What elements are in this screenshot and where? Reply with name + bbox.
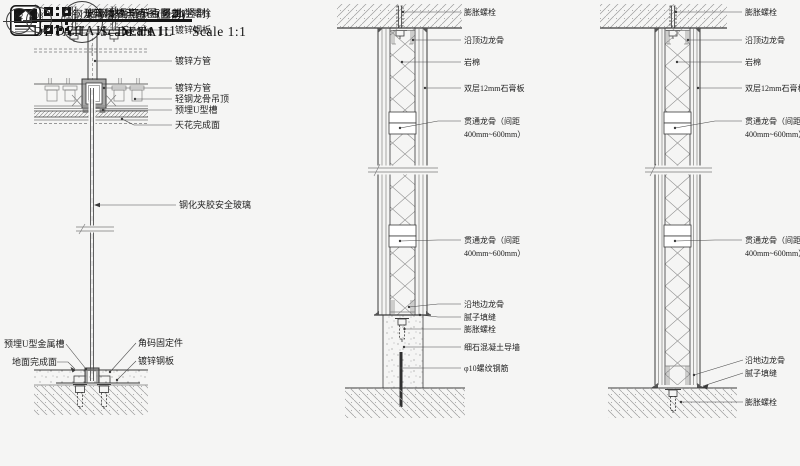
ground-slab <box>608 388 737 418</box>
scale-label: Scale 1:1 <box>122 23 176 39</box>
drawing-title: 轻钢龙骨墙节点图二(竖剖) <box>87 5 210 20</box>
laminated-glass-pane <box>89 88 96 381</box>
label-laminated-glass: 钢化夹胶安全玻璃 <box>179 199 251 210</box>
label-bottom-edge-keel: 沿地边龙骨 <box>464 299 504 309</box>
annotations: 化学螺栓 镀锌钢板 镀锌方管 镀锌方管 轻钢龙骨吊顶 预埋U型槽 天花完成面 钢… <box>4 7 251 381</box>
label-through-keel-2: 贯通龙骨（间距 <box>464 235 520 245</box>
label-galv-square-tube-1: 镀锌方管 <box>175 55 211 66</box>
break-line <box>645 164 713 176</box>
label-galv-square-tube-2: 镀锌方管 <box>175 82 211 93</box>
label-galv-steel-plate-2: 镀锌钢板 <box>138 355 174 366</box>
label-putty-caulking: 腻子填缝 <box>464 312 496 322</box>
scale-label: Scale 1:1 <box>192 24 246 40</box>
label-through-keel-2: 贯通龙骨（间距 <box>745 235 800 245</box>
label-gypsum-board: 双层12mm石膏板 <box>745 83 800 93</box>
label-concrete-curb: 细石混凝土导墙 <box>464 342 520 352</box>
label-rebar: φ10螺纹钢筋 <box>464 363 509 373</box>
through-keel-box-2 <box>389 225 416 247</box>
label-through-keel-1-spacing: 400mm~600mm） <box>745 130 800 139</box>
concrete-slab-top <box>600 4 727 28</box>
label-putty-caulking: 腻子填缝 <box>745 368 777 378</box>
bubble-divider <box>23 20 55 21</box>
label-through-keel-1: 贯通龙骨（间距 <box>464 116 520 126</box>
label-top-edge-keel: 沿顶边龙骨 <box>464 35 504 45</box>
detail-drawing-glass-partition: 化学螺栓 镀锌钢板 镀锌方管 镀锌方管 轻钢龙骨吊顶 预埋U型槽 天花完成面 钢… <box>0 0 330 425</box>
through-keel-box-1 <box>664 112 691 134</box>
label-bottom-edge-keel: 沿地边龙骨 <box>745 355 785 365</box>
through-keel-box-1 <box>389 112 416 134</box>
break-line <box>76 224 114 234</box>
label-expansion-bolt-bottom: 膨胀螺栓 <box>464 324 496 334</box>
label-expansion-bolt-bottom: 膨胀螺栓 <box>745 397 777 407</box>
label-embedded-u-channel: 预埋U型槽 <box>175 104 218 115</box>
label-rock-wool: 岩棉 <box>464 57 480 67</box>
label-angle-fixing: 角码固定件 <box>138 337 183 348</box>
label-embedded-u-metal-channel: 预埋U型金属槽 <box>4 338 65 349</box>
through-keel-box-2 <box>664 225 691 247</box>
label-through-keel-2-spacing: 400mm~600mm） <box>464 249 525 258</box>
annotations: 膨胀螺栓 沿顶边龙骨 岩棉 双层12mm石膏板 贯通龙骨（间距 400mm~60… <box>674 7 800 407</box>
detail-word: DETAIL <box>55 23 112 39</box>
ceiling-datum-lines <box>34 45 148 56</box>
ground-slab <box>345 388 465 418</box>
label-floor-finish: 地面完成面 <box>12 356 57 367</box>
label-ceiling-finish: 天花完成面 <box>175 119 220 130</box>
label-expansion-bolt-top: 膨胀螺栓 <box>464 7 496 17</box>
label-gypsum-board: 双层12mm石膏板 <box>464 83 524 93</box>
label-through-keel-1-spacing: 400mm~600mm） <box>464 130 525 139</box>
break-line <box>368 164 438 176</box>
label-rock-wool: 岩棉 <box>745 57 761 67</box>
detail-number: 03 <box>27 10 51 20</box>
cad-drawing-sheet: { "canvas": { "background": "#f5f5f4", "… <box>0 0 800 466</box>
label-expansion-bolt-top: 膨胀螺栓 <box>745 7 777 17</box>
label-steel-keel-ceiling: 轻钢龙骨吊顶 <box>175 93 229 104</box>
detail-drawing-stud-wall-1: 膨胀螺栓 沿顶边龙骨 岩棉 双层12mm石膏板 贯通龙骨（间距 400mm~60… <box>330 0 560 425</box>
floor-junction <box>34 368 148 415</box>
label-through-keel-1: 贯通龙骨（间距 <box>745 116 800 126</box>
label-top-edge-keel: 沿顶边龙骨 <box>745 35 785 45</box>
detail-drawing-stud-wall-2: 膨胀螺栓 沿顶边龙骨 岩棉 双层12mm石膏板 贯通龙骨（间距 400mm~60… <box>590 0 800 425</box>
stud-wall <box>368 28 438 315</box>
stud-wall <box>645 28 713 388</box>
concrete-slab-top <box>337 4 462 28</box>
label-through-keel-2-spacing: 400mm~600mm） <box>745 249 800 258</box>
